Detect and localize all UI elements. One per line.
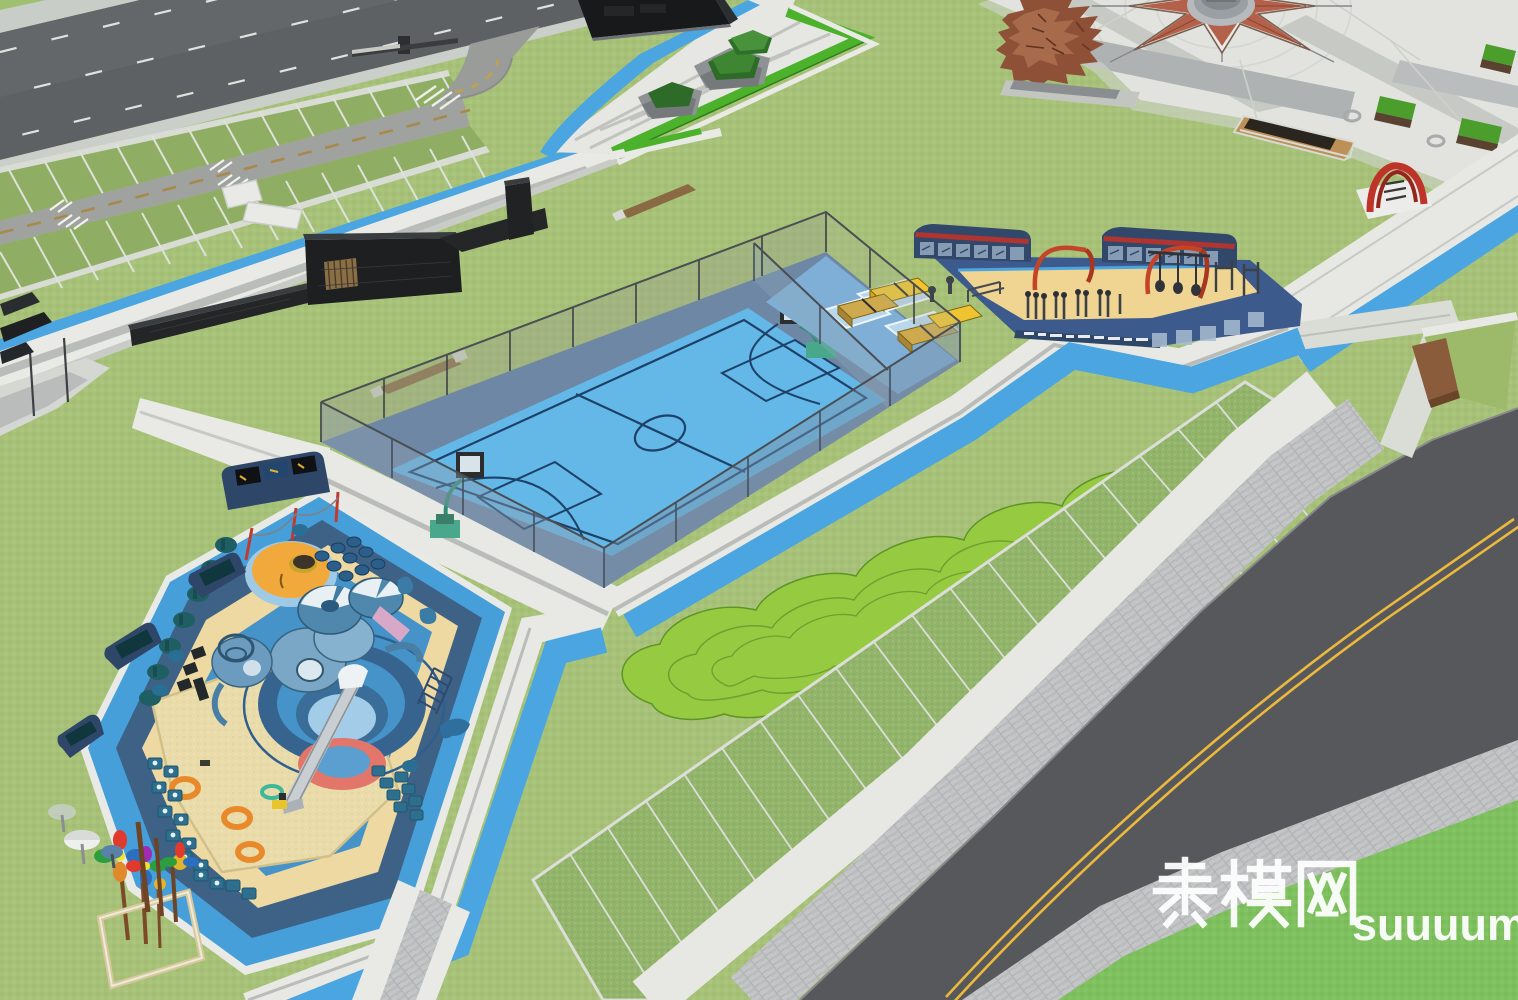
svg-text:suuuum.com: suuuum.com (1352, 899, 1518, 950)
